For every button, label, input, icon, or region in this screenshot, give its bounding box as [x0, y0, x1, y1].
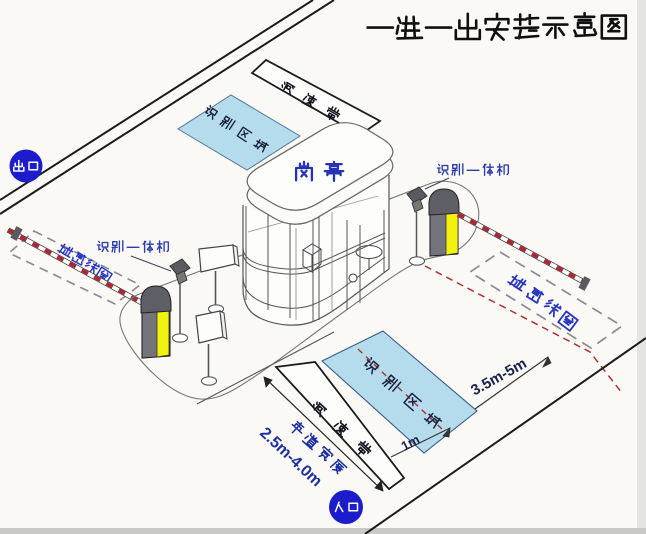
svg-text:2.5m-4.0m: 2.5m-4.0m: [256, 424, 325, 490]
